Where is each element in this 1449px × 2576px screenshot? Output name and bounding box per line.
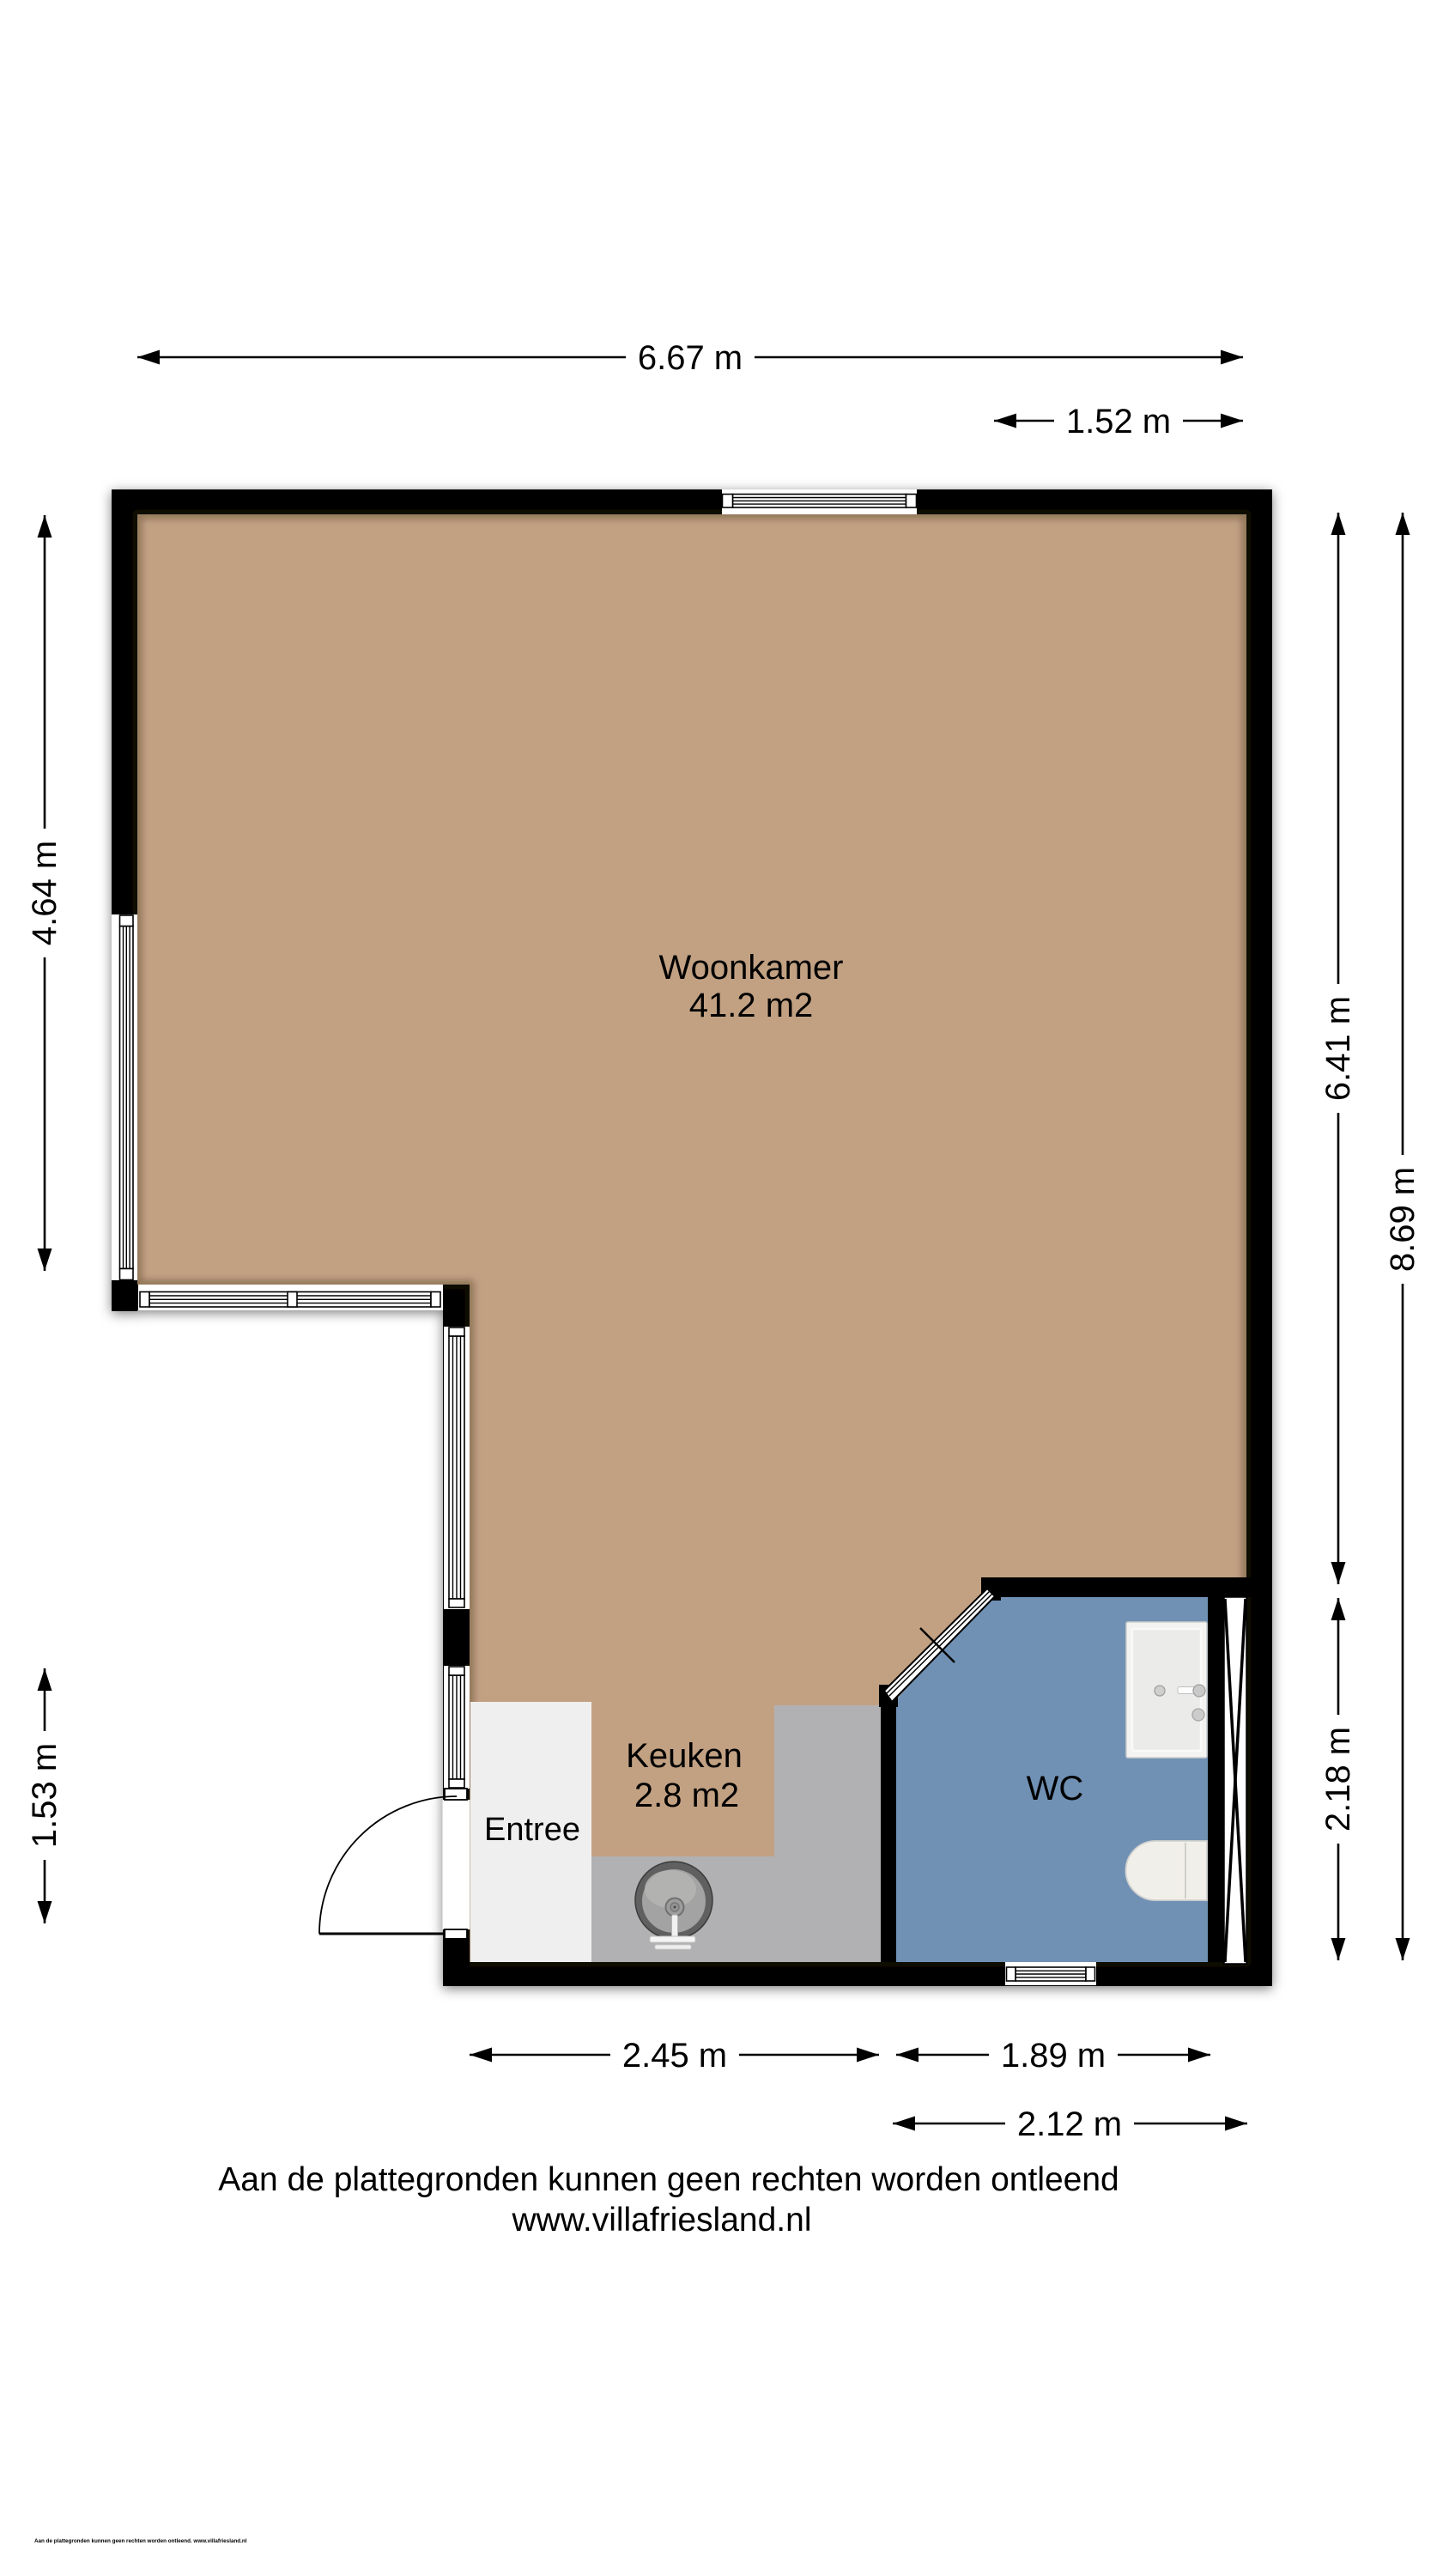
svg-text:2.18 m: 2.18 m	[1319, 1727, 1357, 1832]
svg-text:4.64 m: 4.64 m	[26, 841, 64, 945]
svg-text:6.67 m: 6.67 m	[638, 339, 743, 377]
svg-text:Aan de plattegronden kunnen ge: Aan de plattegronden kunnen geen rechten…	[34, 2538, 247, 2544]
svg-text:8.69 m: 8.69 m	[1384, 1167, 1422, 1272]
svg-text:WC: WC	[1027, 1770, 1084, 1807]
svg-text:6.41 m: 6.41 m	[1319, 996, 1357, 1101]
svg-text:Keuken: Keuken	[626, 1737, 743, 1775]
svg-text:Woonkamer: Woonkamer	[659, 949, 844, 987]
svg-text:www.villafriesland.nl: www.villafriesland.nl	[512, 2202, 812, 2239]
svg-text:2.12 m: 2.12 m	[1017, 2105, 1122, 2143]
svg-text:1.89 m: 1.89 m	[1001, 2037, 1106, 2075]
svg-text:Aan de plattegronden kunnen ge: Aan de plattegronden kunnen geen rechten…	[218, 2161, 1119, 2198]
svg-text:1.52 m: 1.52 m	[1066, 403, 1171, 440]
svg-text:2.45 m: 2.45 m	[622, 2037, 727, 2075]
svg-text:Entree: Entree	[484, 1812, 580, 1848]
svg-text:1.53 m: 1.53 m	[26, 1743, 64, 1848]
svg-text:41.2 m2: 41.2 m2	[689, 987, 814, 1024]
svg-text:2.8 m2: 2.8 m2	[634, 1777, 739, 1814]
